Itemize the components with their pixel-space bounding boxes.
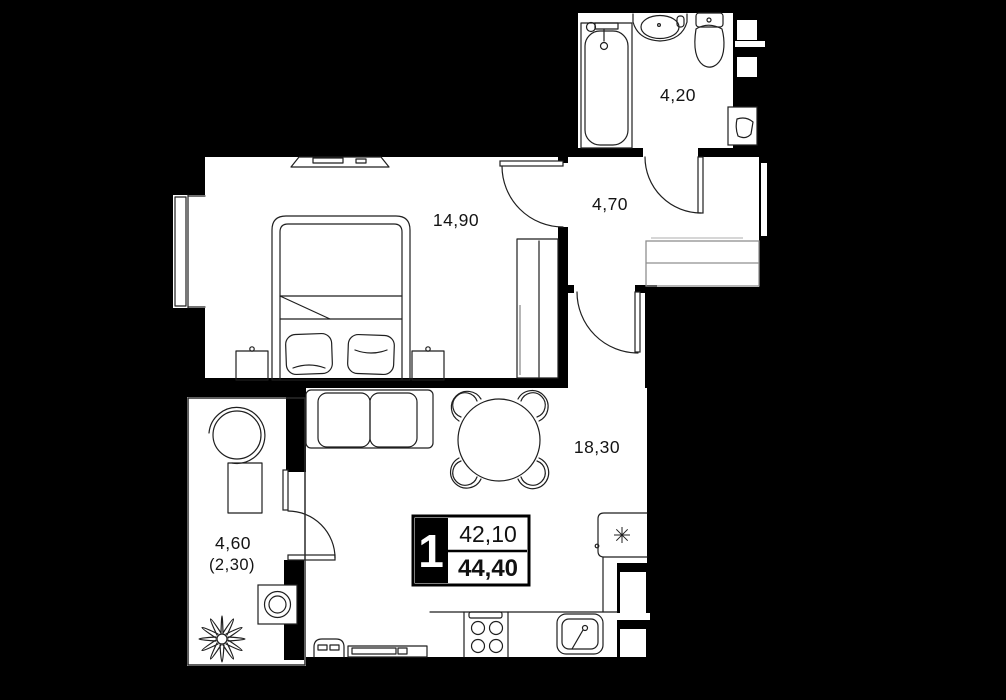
- shaft-band: [735, 41, 765, 47]
- bathroom-door-opening: [643, 148, 698, 157]
- living-area-label: 18,30: [574, 437, 620, 457]
- bedroom-area-label: 14,90: [433, 210, 479, 230]
- balcony-area-label: 4,60: [215, 533, 251, 553]
- living-door-gap: [568, 285, 645, 292]
- washing-machine: [258, 585, 297, 624]
- hallway-floor: [568, 157, 760, 287]
- bedroom-floor: [205, 157, 558, 378]
- entry-door-opening: [761, 163, 767, 236]
- bedroom-door-opening: [558, 163, 568, 227]
- kitchen-shaft-box-top: [620, 572, 646, 613]
- floor-plan: 4,20 4,70 14,90 18,30 4,60 (2,30) 1 42,1…: [0, 0, 1006, 700]
- shaft-white-band: [617, 613, 650, 620]
- shaft-box-bottom: [737, 57, 757, 77]
- wall-balcony-divider-upper: [286, 397, 306, 472]
- bathroom-area-label: 4,20: [660, 85, 696, 105]
- shaft-box-top: [737, 20, 757, 40]
- wall-bedroom-south-west: [185, 378, 306, 397]
- balcony-area-coef-label: (2,30): [209, 556, 255, 574]
- kitchen-shaft-box-bottom: [620, 629, 646, 657]
- unit-number: 1: [418, 525, 444, 577]
- wall-stub-left: [558, 285, 574, 293]
- snowflake-icon: [614, 527, 630, 543]
- unit-total-area: 44,40: [458, 555, 518, 582]
- living-corridor-floor: [568, 292, 645, 388]
- hallway-area-label: 4,70: [592, 194, 628, 214]
- bathroom-floor: [578, 13, 733, 148]
- unit-info-box: 1 42,10 44,40: [413, 516, 529, 585]
- bedroom-window-niche: [173, 195, 205, 308]
- water-heater: [728, 107, 757, 145]
- unit-living-area: 42,10: [459, 521, 517, 547]
- floor-plan-canvas: 4,20 4,70 14,90 18,30 4,60 (2,30) 1 42,1…: [0, 0, 1006, 700]
